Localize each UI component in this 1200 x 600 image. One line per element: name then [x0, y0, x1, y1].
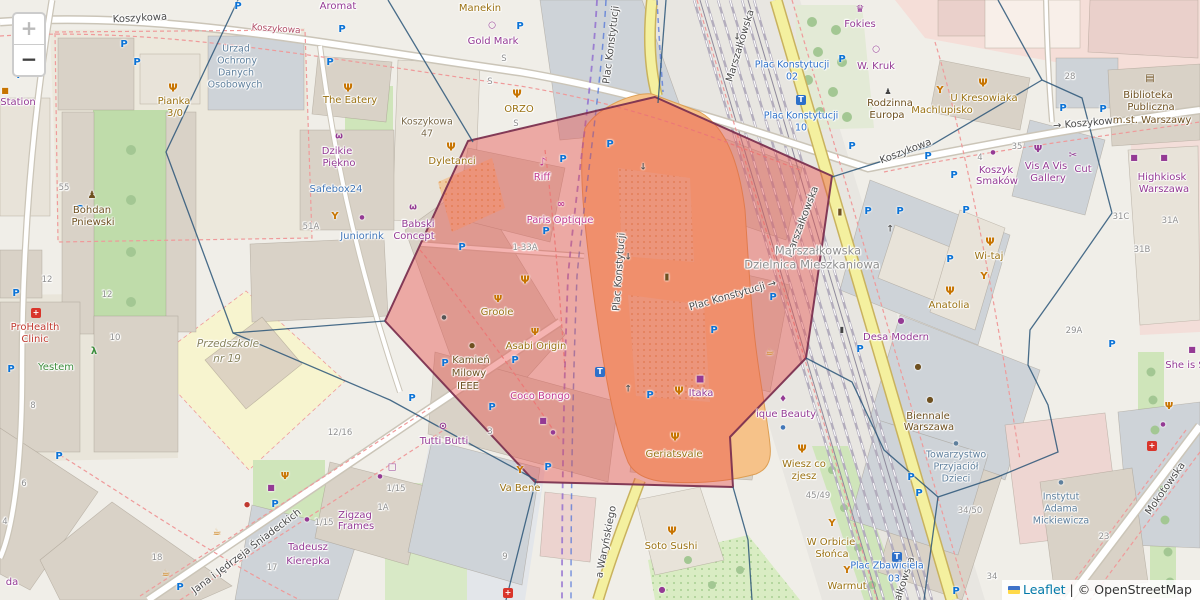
zoom-in-button[interactable]: + — [14, 14, 44, 45]
zoom-control: + − — [12, 12, 46, 77]
leaflet-link[interactable]: Leaflet — [1023, 582, 1066, 597]
base-map-tiles — [0, 0, 1200, 600]
ukraine-flag-icon — [1008, 586, 1020, 594]
map-canvas[interactable]: PPPPPPPPPPPPPPPPPPPPPPPPPPPPPPPPPPPPPPPP… — [0, 0, 1200, 600]
osm-attribution: © OpenStreetMap — [1078, 582, 1192, 597]
zoom-out-button[interactable]: − — [14, 45, 44, 75]
attribution-separator: | — [1070, 582, 1074, 597]
attribution-bar: Leaflet|© OpenStreetMap — [1002, 580, 1200, 600]
